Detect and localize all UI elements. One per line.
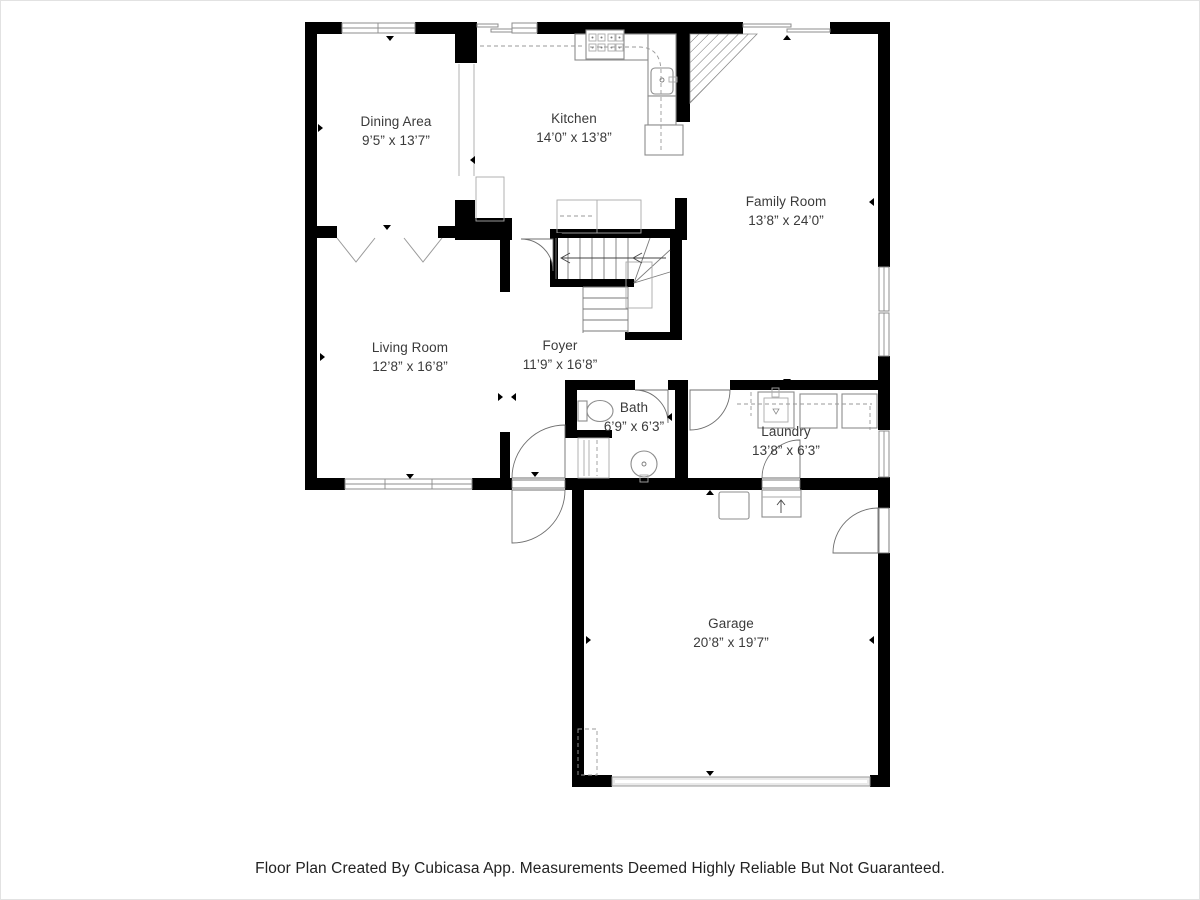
laundry-garage-threshold xyxy=(762,480,800,488)
kitchen-window xyxy=(512,23,537,33)
room-name: Bath xyxy=(604,398,664,417)
garage-side-door-swing xyxy=(833,508,878,553)
kitchen-sliding-door xyxy=(477,24,512,32)
room-name: Laundry xyxy=(752,422,820,441)
family-side-windows xyxy=(879,267,889,356)
front-door-inside-swing xyxy=(512,425,565,478)
stove-icon xyxy=(586,30,624,59)
kitchen-sink-icon xyxy=(651,68,677,94)
room-label-foyer: Foyer 11’9” x 16’8” xyxy=(523,336,598,374)
living-window xyxy=(345,479,472,489)
foyer-closet xyxy=(557,200,641,233)
kitchen-counter-right-mid xyxy=(648,96,676,125)
room-name: Kitchen xyxy=(536,109,612,128)
room-dims: 14’0” x 13’8” xyxy=(536,128,612,147)
front-door-outside-swing xyxy=(512,490,565,543)
room-dims: 12’8” x 16’8” xyxy=(372,357,448,376)
room-dims: 9’5” x 13’7” xyxy=(361,131,432,150)
room-dims: 20’8” x 19’7” xyxy=(693,633,769,652)
garage-side-door-leaf xyxy=(879,508,889,553)
room-name: Family Room xyxy=(746,192,827,211)
laundry-window xyxy=(879,431,889,477)
bath-closet xyxy=(578,438,609,478)
garage-step xyxy=(762,490,801,517)
room-label-bath: Bath 6’9” x 6’3” xyxy=(604,398,664,436)
front-door-threshold xyxy=(512,480,565,488)
room-label-garage: Garage 20’8” x 19’7” xyxy=(693,614,769,652)
family-sliding-window xyxy=(743,24,830,32)
room-name: Garage xyxy=(693,614,769,633)
room-label-kitchen: Kitchen 14’0” x 13’8” xyxy=(536,109,612,147)
room-label-living: Living Room 12’8” x 16’8” xyxy=(372,338,448,376)
footer-disclaimer: Floor Plan Created By Cubicasa App. Meas… xyxy=(0,860,1200,878)
bath-sink-icon xyxy=(631,451,657,482)
garage-door xyxy=(612,777,870,786)
room-label-laundry: Laundry 13’8” x 6’3” xyxy=(752,422,820,460)
stair-hatch-area xyxy=(690,34,757,103)
room-dims: 6’9” x 6’3” xyxy=(604,417,664,436)
room-name: Living Room xyxy=(372,338,448,357)
room-label-dining: Dining Area 9’5” x 13’7” xyxy=(361,112,432,150)
laundry-door-swing xyxy=(690,390,730,430)
dryer-icon xyxy=(842,394,877,428)
water-heater-icon xyxy=(719,492,749,519)
room-name: Foyer xyxy=(523,336,598,355)
room-dims: 13’8” x 24’0” xyxy=(746,211,827,230)
opening-marks xyxy=(337,238,442,262)
foyer-closet-door-swing xyxy=(521,239,553,271)
room-dims: 11’9” x 16’8” xyxy=(523,355,598,374)
room-label-family: Family Room 13’8” x 24’0” xyxy=(746,192,827,230)
room-dims: 13’8” x 6’3” xyxy=(752,441,820,460)
kitchen-counter-right-lower xyxy=(645,125,683,155)
dining-window xyxy=(342,23,415,33)
room-name: Dining Area xyxy=(361,112,432,131)
floor-plan-canvas: Dining Area 9’5” x 13’7” Kitchen 14’0” x… xyxy=(0,0,1200,900)
pantry xyxy=(459,64,504,221)
